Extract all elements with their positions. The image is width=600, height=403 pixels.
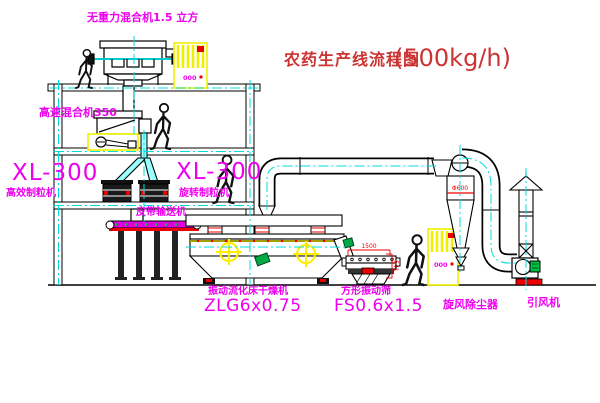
diagram-capacity: (500kg/h): [394, 46, 511, 70]
panel1-display: 000: [183, 74, 197, 82]
label-gravity-mixer: 无重力混合机1.5 立方: [87, 12, 198, 23]
y-splitter-pipe: [114, 158, 158, 182]
flow-diagram-canvas: 000: [0, 0, 600, 403]
label-fan: 引风机: [527, 297, 560, 308]
dim-sieve-height: 541: [392, 260, 399, 272]
dim-sieve-length: 1500: [361, 243, 376, 250]
label-granulator-left-model: XL-300: [12, 162, 98, 185]
control-cabinet-2: 000: [428, 229, 458, 285]
induced-draft-fan: [512, 258, 542, 285]
label-high-speed-mixer: 高速混合机350: [39, 107, 117, 118]
belt-conveyor-machine: [106, 221, 201, 280]
panel2-indicator: [448, 233, 454, 238]
fan-motor: [530, 261, 540, 272]
mixer-motor-box: [88, 134, 138, 150]
granulator-left-machine: [101, 180, 133, 202]
fan-base: [516, 279, 542, 285]
label-granulator-mid-model: XL-300: [176, 161, 262, 184]
label-granulator-mid-name: 旋转制粒机: [179, 189, 229, 199]
label-cyclone: 旋风除尘器: [443, 299, 498, 310]
dryer-feet: [203, 278, 329, 284]
sieve-machine: 1500 541: [334, 236, 400, 284]
dryer-exhaust-duct: [267, 157, 434, 206]
sieve-green-part: [343, 238, 354, 248]
worker-figure-ground: [403, 235, 424, 285]
fluid-bed-dryer-machine: [186, 206, 344, 284]
worker-figure-roof: [76, 50, 92, 88]
control-cabinet-1: 000: [174, 43, 207, 88]
worker-figure-floor2: [151, 104, 170, 149]
label-dryer-model: ZLG6x0.75: [204, 298, 302, 315]
granulator-mid-machine: [138, 180, 170, 202]
panel2-display: 000: [434, 261, 448, 269]
panel1-indicator: [197, 46, 204, 52]
mixer-downpipe: [123, 86, 134, 113]
label-belt-conveyor: 皮带输送机: [136, 208, 186, 218]
label-sieve-model: FS0.6x1.5: [334, 298, 423, 315]
gravity-mixer-machine: [88, 41, 178, 86]
label-granulator-left-name: 高效制粒机: [6, 189, 56, 199]
conveyor-legs: [115, 231, 181, 280]
